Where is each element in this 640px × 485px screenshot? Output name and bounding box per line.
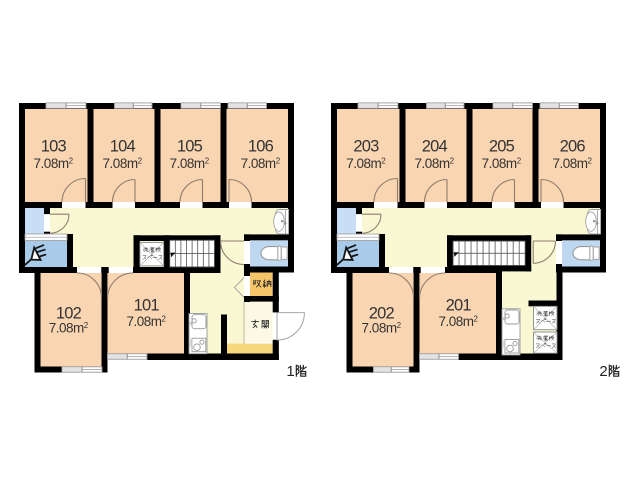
svg-text:105: 105 [177, 138, 203, 156]
svg-text:7.08m2: 7.08m2 [34, 156, 74, 171]
svg-text:7.08m2: 7.08m2 [103, 156, 143, 171]
svg-text:205: 205 [489, 138, 515, 156]
svg-text:101: 101 [134, 297, 160, 315]
svg-text:7.08m2: 7.08m2 [439, 314, 479, 329]
svg-text:7.08m2: 7.08m2 [346, 156, 386, 171]
svg-text:7.08m2: 7.08m2 [170, 156, 210, 171]
svg-text:7.08m2: 7.08m2 [241, 156, 281, 171]
svg-text:7.08m2: 7.08m2 [127, 314, 167, 329]
svg-text:7.08m2: 7.08m2 [362, 320, 402, 335]
svg-text:204: 204 [422, 138, 448, 156]
svg-text:206: 206 [560, 138, 586, 156]
svg-text:7.08m2: 7.08m2 [482, 156, 522, 171]
svg-text:201: 201 [446, 297, 472, 315]
svg-text:7.08m2: 7.08m2 [49, 320, 89, 335]
svg-text:1: 1 [286, 363, 294, 380]
svg-text:7.08m2: 7.08m2 [552, 156, 592, 171]
svg-text:7.08m2: 7.08m2 [415, 156, 455, 171]
svg-text:103: 103 [41, 138, 67, 156]
svg-text:2: 2 [599, 363, 607, 380]
svg-text:104: 104 [110, 138, 136, 156]
svg-text:106: 106 [248, 138, 274, 156]
svg-text:203: 203 [353, 138, 379, 156]
